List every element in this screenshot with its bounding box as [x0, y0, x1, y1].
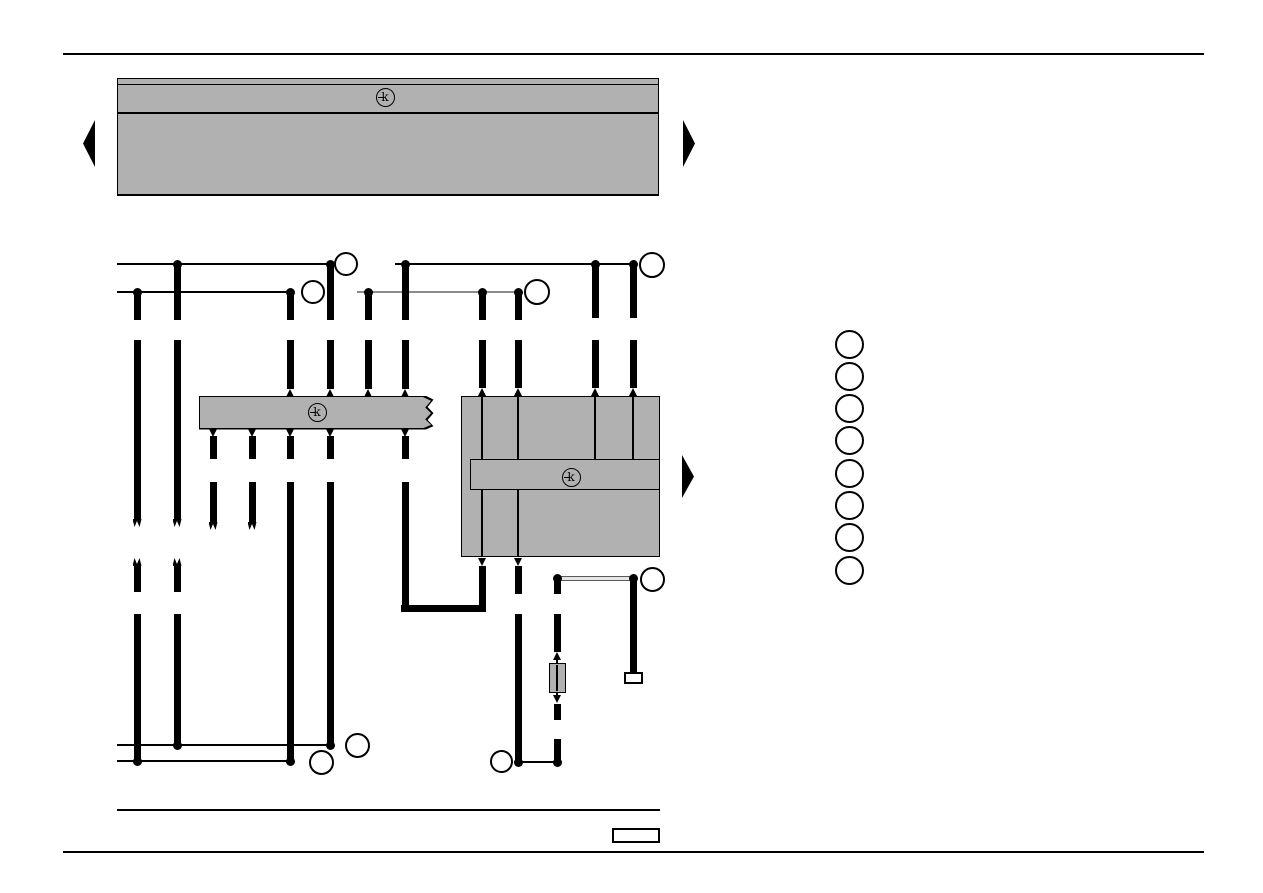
thin-wire [517, 490, 519, 557]
wire-direction-arrow-down [209, 429, 217, 437]
junction-dot [553, 574, 562, 583]
thin-wire [481, 397, 483, 459]
wire-direction-arrow-up [478, 388, 486, 396]
wire-direction-arrow-down [401, 429, 409, 437]
wire-segment [402, 436, 409, 459]
wire-break-fork [133, 558, 142, 566]
junction-dot [173, 741, 182, 750]
u-turn-bottom [401, 605, 486, 612]
top-panel-header-line [117, 84, 659, 85]
wire-break-fork [173, 519, 182, 527]
wire-break-fork [173, 558, 182, 566]
wire-segment [249, 436, 256, 459]
wire-direction-arrow-up [401, 389, 409, 397]
junction-dot [364, 288, 373, 297]
wire-label-circle [490, 750, 513, 773]
wire-segment [174, 566, 181, 592]
wire-segment [515, 566, 522, 594]
module-continues-arrow[interactable] [682, 455, 694, 498]
wire-direction-arrow-up [591, 388, 599, 396]
wire-direction-arrow-up [553, 652, 561, 660]
wire-segment [592, 264, 599, 318]
bottom-link-line [518, 761, 557, 763]
legend-circle [835, 459, 864, 488]
junction-dot [133, 288, 142, 297]
wire-direction-arrow-up [364, 389, 372, 397]
wire-segment [287, 340, 294, 389]
shielded-pair-line [557, 576, 633, 581]
wire-segment [287, 482, 294, 761]
wire-segment [630, 340, 637, 388]
wire-label-circle [524, 279, 550, 305]
page-top-rule [63, 53, 1204, 55]
wire-segment [402, 482, 409, 612]
legend-circle [835, 362, 864, 391]
junction-dot [173, 260, 182, 269]
wire-segment [630, 264, 637, 318]
junction-dot [629, 574, 638, 583]
wire-direction-arrow-up [286, 389, 294, 397]
wire-segment [287, 436, 294, 459]
wire-direction-arrow-up [514, 388, 522, 396]
fuse-lead-line [556, 665, 558, 691]
wire-break-fork [133, 519, 142, 527]
legend-circle [835, 491, 864, 520]
legend-circle [835, 394, 864, 423]
junction-dot [286, 757, 295, 766]
wire-segment [515, 340, 522, 388]
wire-direction-arrow-down [286, 429, 294, 437]
page-bottom-rule [63, 851, 1204, 853]
page-label-box [612, 828, 660, 843]
key-symbol-tick [564, 477, 570, 478]
wire-segment [479, 566, 486, 612]
component-key-symbol: k [308, 403, 327, 422]
wire-break-fork [248, 522, 257, 530]
wire-label-circle [301, 280, 325, 304]
wire-label-circle [640, 567, 665, 592]
junction-dot [286, 288, 295, 297]
wire-segment [134, 340, 141, 519]
bottom-line-1 [117, 744, 330, 746]
wire-label-circle [334, 252, 358, 276]
wire-segment [327, 482, 334, 745]
wiring-diagram-page: kkk [0, 0, 1263, 893]
wire-segment [592, 340, 599, 388]
wire-segment [174, 340, 181, 519]
bus-line-left-1 [117, 263, 330, 265]
thin-wire [517, 397, 519, 459]
wire-direction-arrow-down [478, 558, 486, 566]
wire-segment [327, 436, 334, 459]
next-page-arrow[interactable] [683, 120, 695, 167]
junction-dot [133, 757, 142, 766]
junction-dot [629, 260, 638, 269]
wire-segment [365, 340, 372, 389]
wire-segment [479, 340, 486, 388]
legend-circle [835, 426, 864, 455]
wire-segment [515, 614, 522, 762]
wire-segment [327, 340, 334, 389]
wire-direction-arrow-up [326, 389, 334, 397]
wire-segment [554, 614, 561, 652]
bus-line-right-2 [357, 291, 518, 293]
bottom-line-2 [117, 760, 290, 762]
wire-label-circle [345, 733, 370, 758]
wire-segment [554, 704, 561, 720]
component-key-symbol: k [376, 88, 395, 107]
thin-wire [632, 397, 634, 459]
wire-segment [174, 264, 181, 320]
wire-segment [134, 566, 141, 592]
wire-direction-arrow-down [553, 695, 561, 703]
wire-label-circle [639, 252, 665, 278]
wire-segment [174, 614, 181, 745]
key-symbol-tick [310, 412, 316, 413]
junction-dot [401, 260, 410, 269]
bus-line-left-2 [117, 291, 290, 293]
wire-direction-arrow-down [514, 558, 522, 566]
wire-direction-arrow-up [629, 388, 637, 396]
wire-segment [327, 264, 334, 320]
wire-segment [134, 614, 141, 761]
component-key-symbol: k [562, 468, 581, 487]
junction-dot [326, 741, 335, 750]
wire-label-circle [309, 750, 334, 775]
junction-dot [553, 758, 562, 767]
wire-direction-arrow-down [326, 429, 334, 437]
wire-segment [630, 578, 637, 672]
key-symbol-tick [378, 97, 384, 98]
junction-dot [478, 288, 487, 297]
junction-dot [591, 260, 600, 269]
wire-break-fork [209, 522, 218, 530]
thin-wire [594, 397, 596, 459]
wire-segment [210, 482, 217, 522]
wire-segment [402, 264, 409, 320]
thin-wire [481, 490, 483, 557]
wire-segment [402, 340, 409, 389]
junction-dot [514, 288, 523, 297]
diagram-bottom-rule [117, 809, 660, 811]
ground-terminator [624, 672, 643, 684]
legend-circle [835, 556, 864, 585]
wire-segment [210, 436, 217, 459]
wire-segment [249, 482, 256, 522]
wire-direction-arrow-down [248, 429, 256, 437]
legend-circle [835, 330, 864, 359]
junction-dot [514, 758, 523, 767]
prev-page-arrow[interactable] [83, 120, 95, 167]
top-panel-divider-line [117, 112, 659, 114]
legend-circle [835, 523, 864, 552]
